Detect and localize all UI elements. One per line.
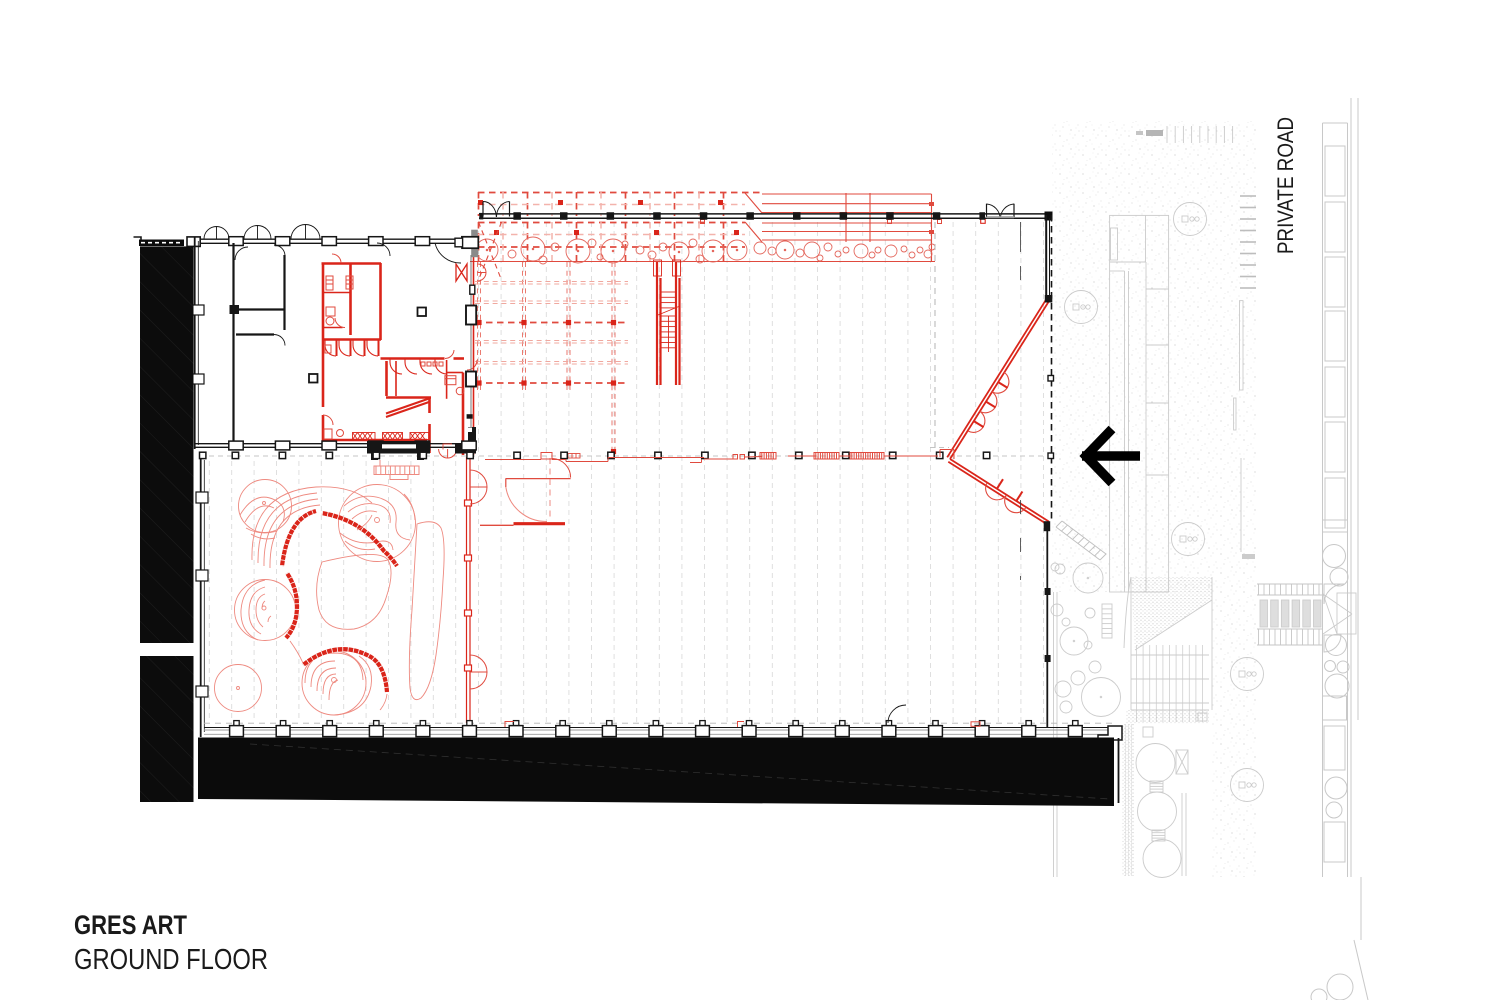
svg-text:PRIVATE ROAD: PRIVATE ROAD <box>1273 117 1298 254</box>
svg-text:GROUND FLOOR: GROUND FLOOR <box>74 944 268 976</box>
svg-text:GRES ART: GRES ART <box>74 910 187 940</box>
